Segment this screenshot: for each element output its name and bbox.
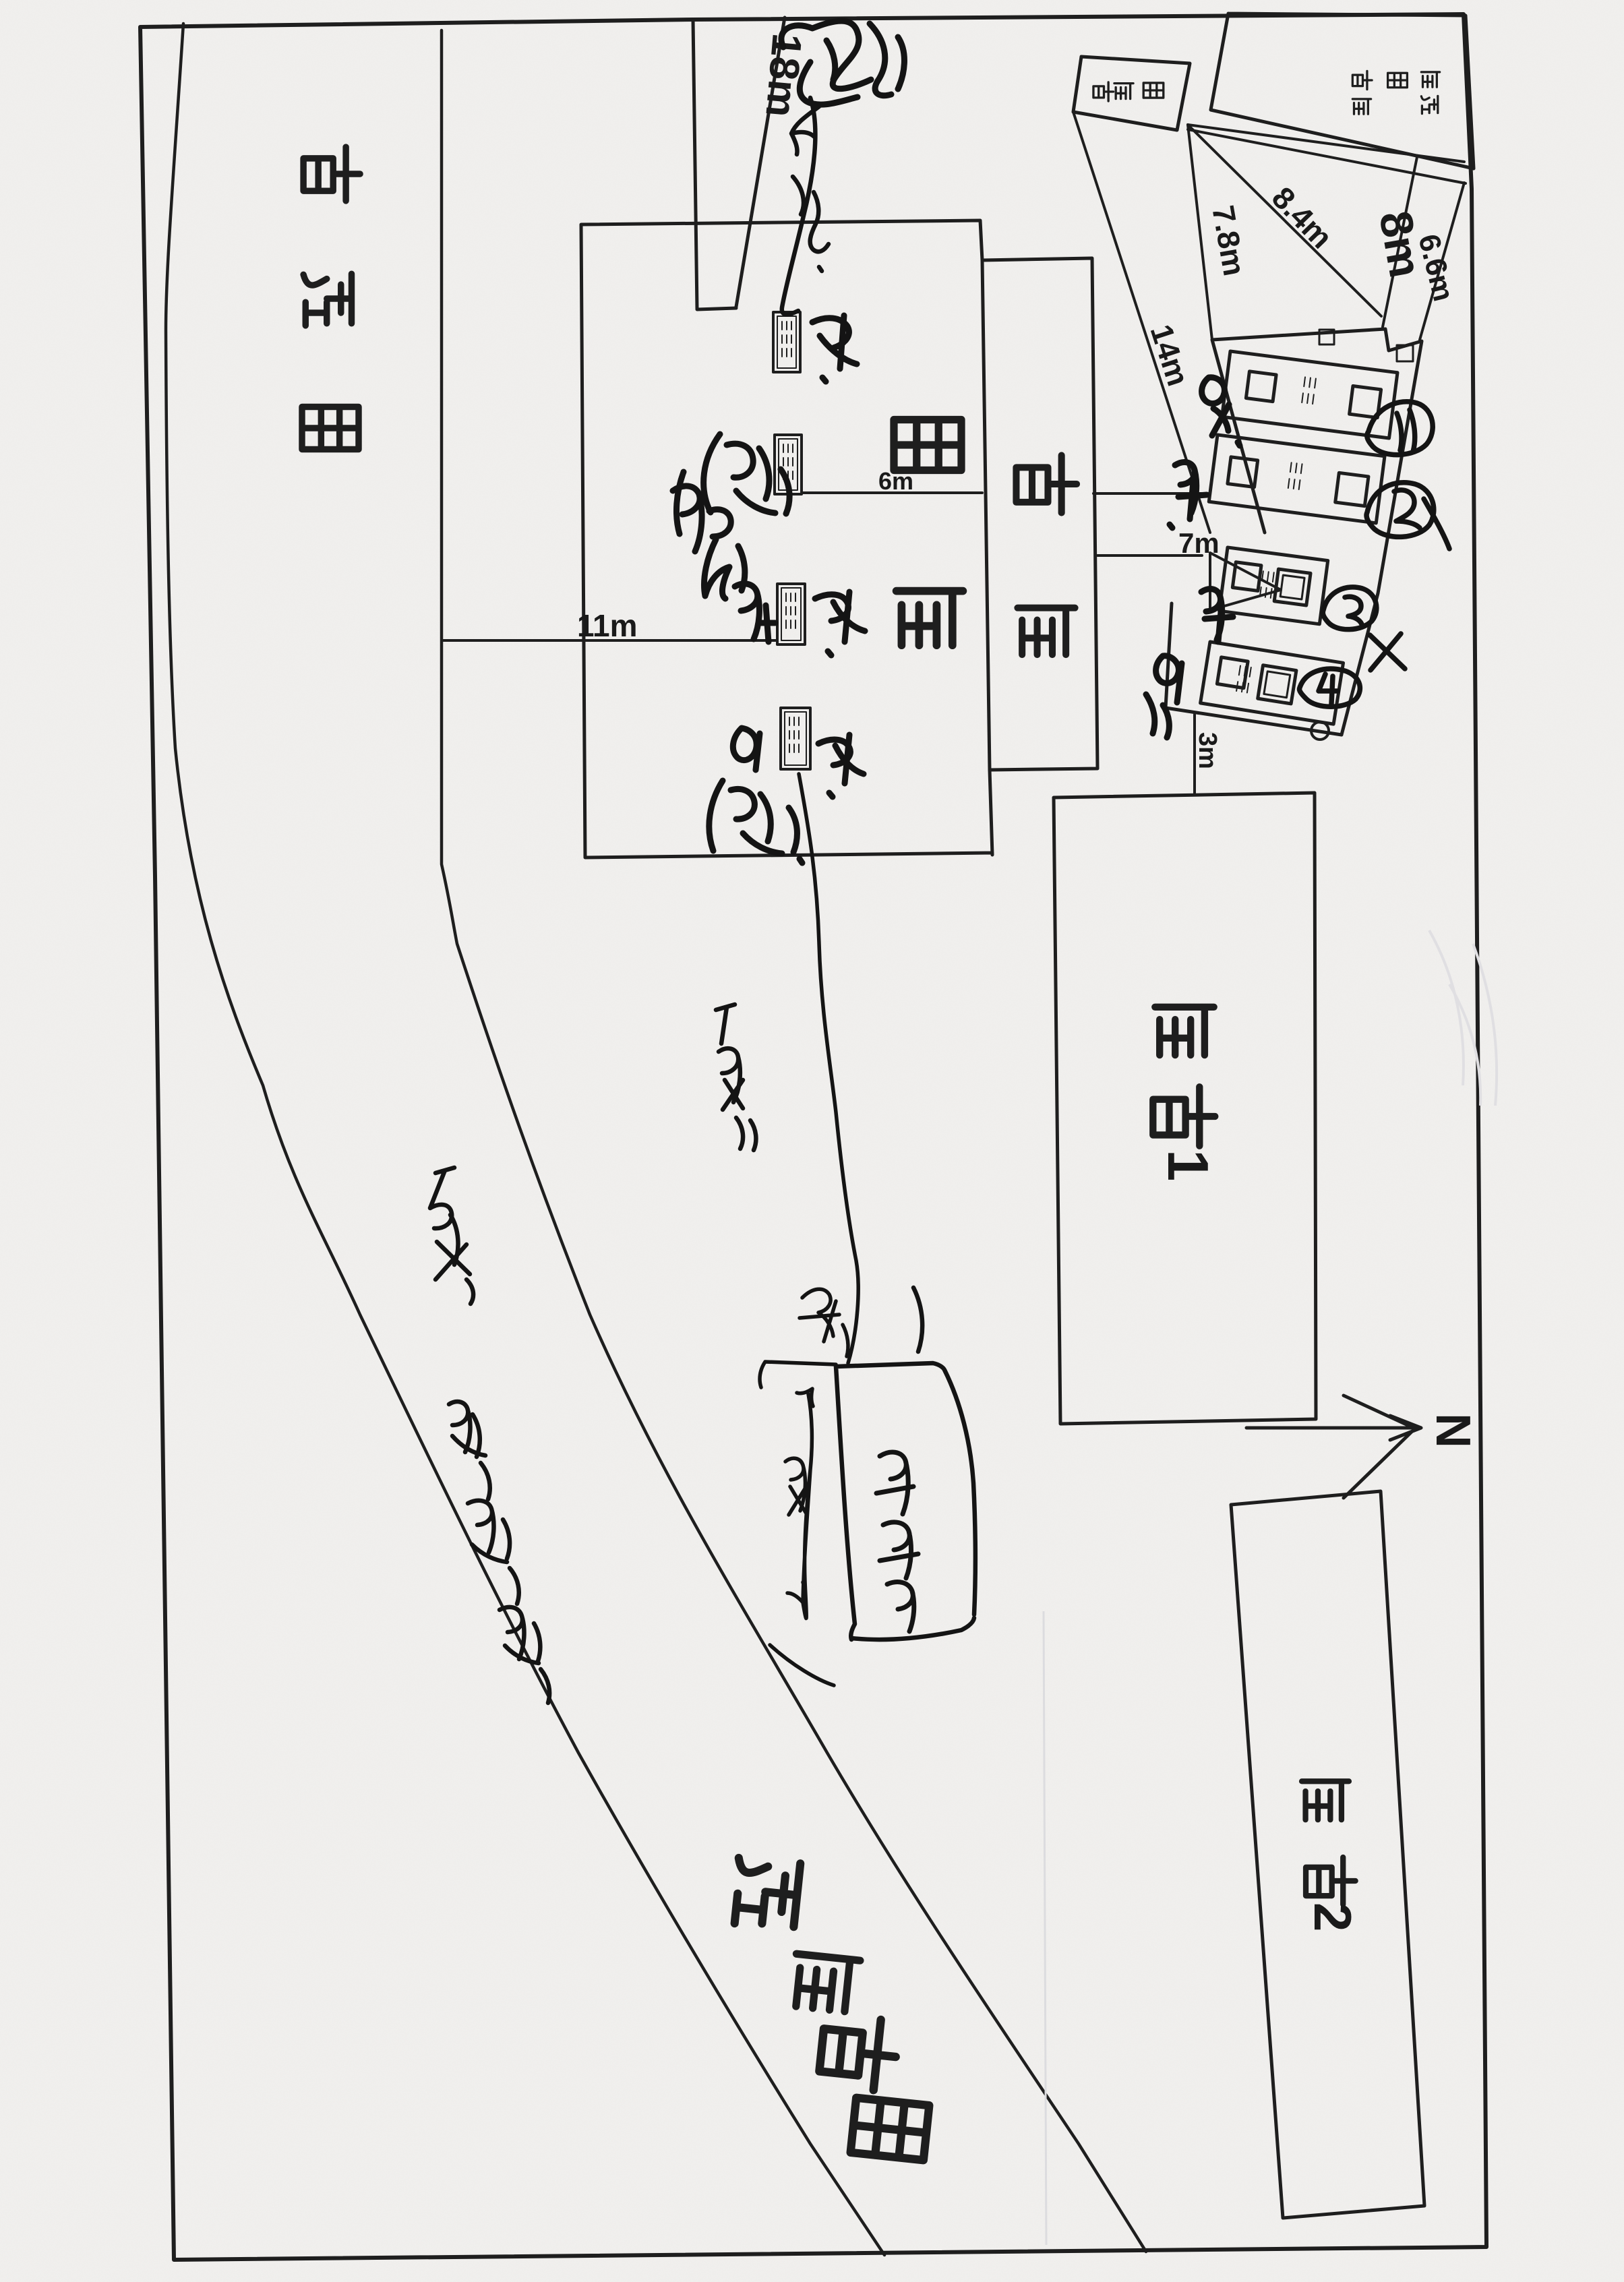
svg-text:N: N	[1426, 1413, 1480, 1448]
svg-text:3m: 3m	[1193, 732, 1222, 769]
svg-text:11m: 11m	[577, 608, 638, 643]
svg-text:2: 2	[1303, 1902, 1362, 1931]
svg-text:7m: 7m	[1178, 527, 1220, 559]
svg-text:1: 1	[1155, 1149, 1220, 1181]
svg-text:6m: 6m	[878, 467, 913, 495]
